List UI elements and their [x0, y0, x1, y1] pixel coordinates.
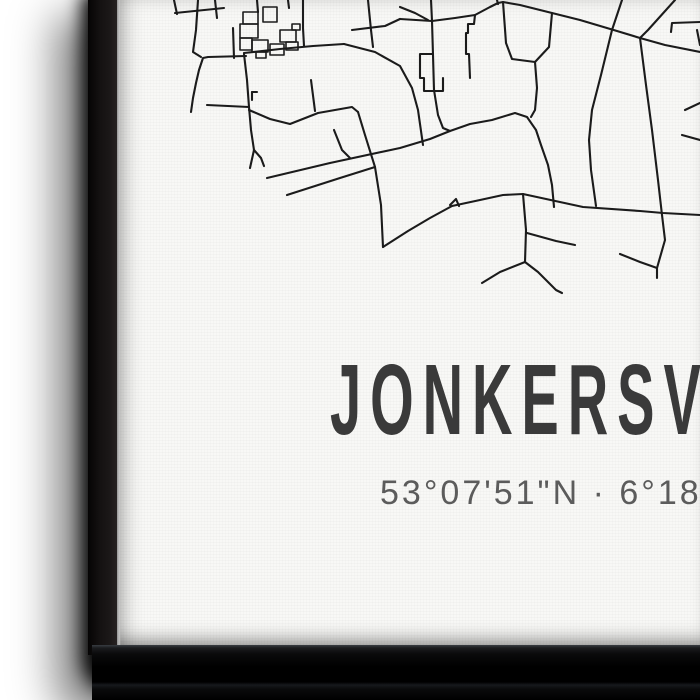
canvas-print: JONKERSVAA 53°07'51"N · 6°18'58"O: [0, 0, 700, 700]
map-road: [193, 0, 201, 57]
map-road: [531, 62, 537, 117]
map-building: [240, 24, 258, 38]
map-road: [254, 150, 264, 166]
map-road: [358, 112, 383, 247]
map-building: [263, 7, 277, 22]
map-drawing: [117, 0, 700, 350]
poster-title: JONKERSVAA: [330, 350, 700, 450]
map-road: [249, 107, 358, 124]
map-road: [267, 113, 554, 207]
canvas-side-edge: [88, 0, 117, 655]
map-building: [280, 30, 296, 42]
map-road: [527, 233, 575, 245]
map-building: [240, 38, 252, 50]
map-road: [640, 0, 675, 278]
map-road: [334, 130, 350, 158]
map-road: [523, 194, 526, 262]
map-road: [303, 0, 304, 46]
map-road: [482, 262, 525, 283]
map-road: [311, 80, 315, 111]
map-building: [243, 12, 258, 24]
map-road: [257, 0, 258, 12]
map-road: [682, 135, 700, 140]
map-road: [352, 19, 400, 30]
map-road: [191, 56, 246, 112]
canvas-face: JONKERSVAA 53°07'51"N · 6°18'58"O: [117, 0, 700, 645]
map-road: [344, 44, 423, 145]
map-building: [256, 52, 266, 58]
map-road: [400, 7, 428, 20]
map-road: [233, 28, 234, 58]
map-road: [207, 105, 249, 107]
map-road: [383, 206, 452, 247]
map-road: [671, 22, 700, 32]
map-road: [685, 103, 700, 110]
map-road: [288, 0, 289, 8]
poster-coordinates: 53°07'51"N · 6°18'58"O: [380, 476, 700, 510]
map-road: [287, 167, 375, 195]
map-road: [420, 54, 443, 91]
map-road: [497, 0, 498, 4]
map-road: [215, 0, 217, 18]
map-road: [525, 262, 562, 293]
map-road: [452, 194, 700, 215]
map-road: [466, 15, 475, 78]
product-photo: JONKERSVAA 53°07'51"N · 6°18'58"O: [0, 0, 700, 700]
canvas-bottom-edge: [92, 645, 700, 700]
map-road: [620, 254, 657, 268]
map-road: [368, 0, 373, 47]
map-building: [292, 24, 300, 30]
